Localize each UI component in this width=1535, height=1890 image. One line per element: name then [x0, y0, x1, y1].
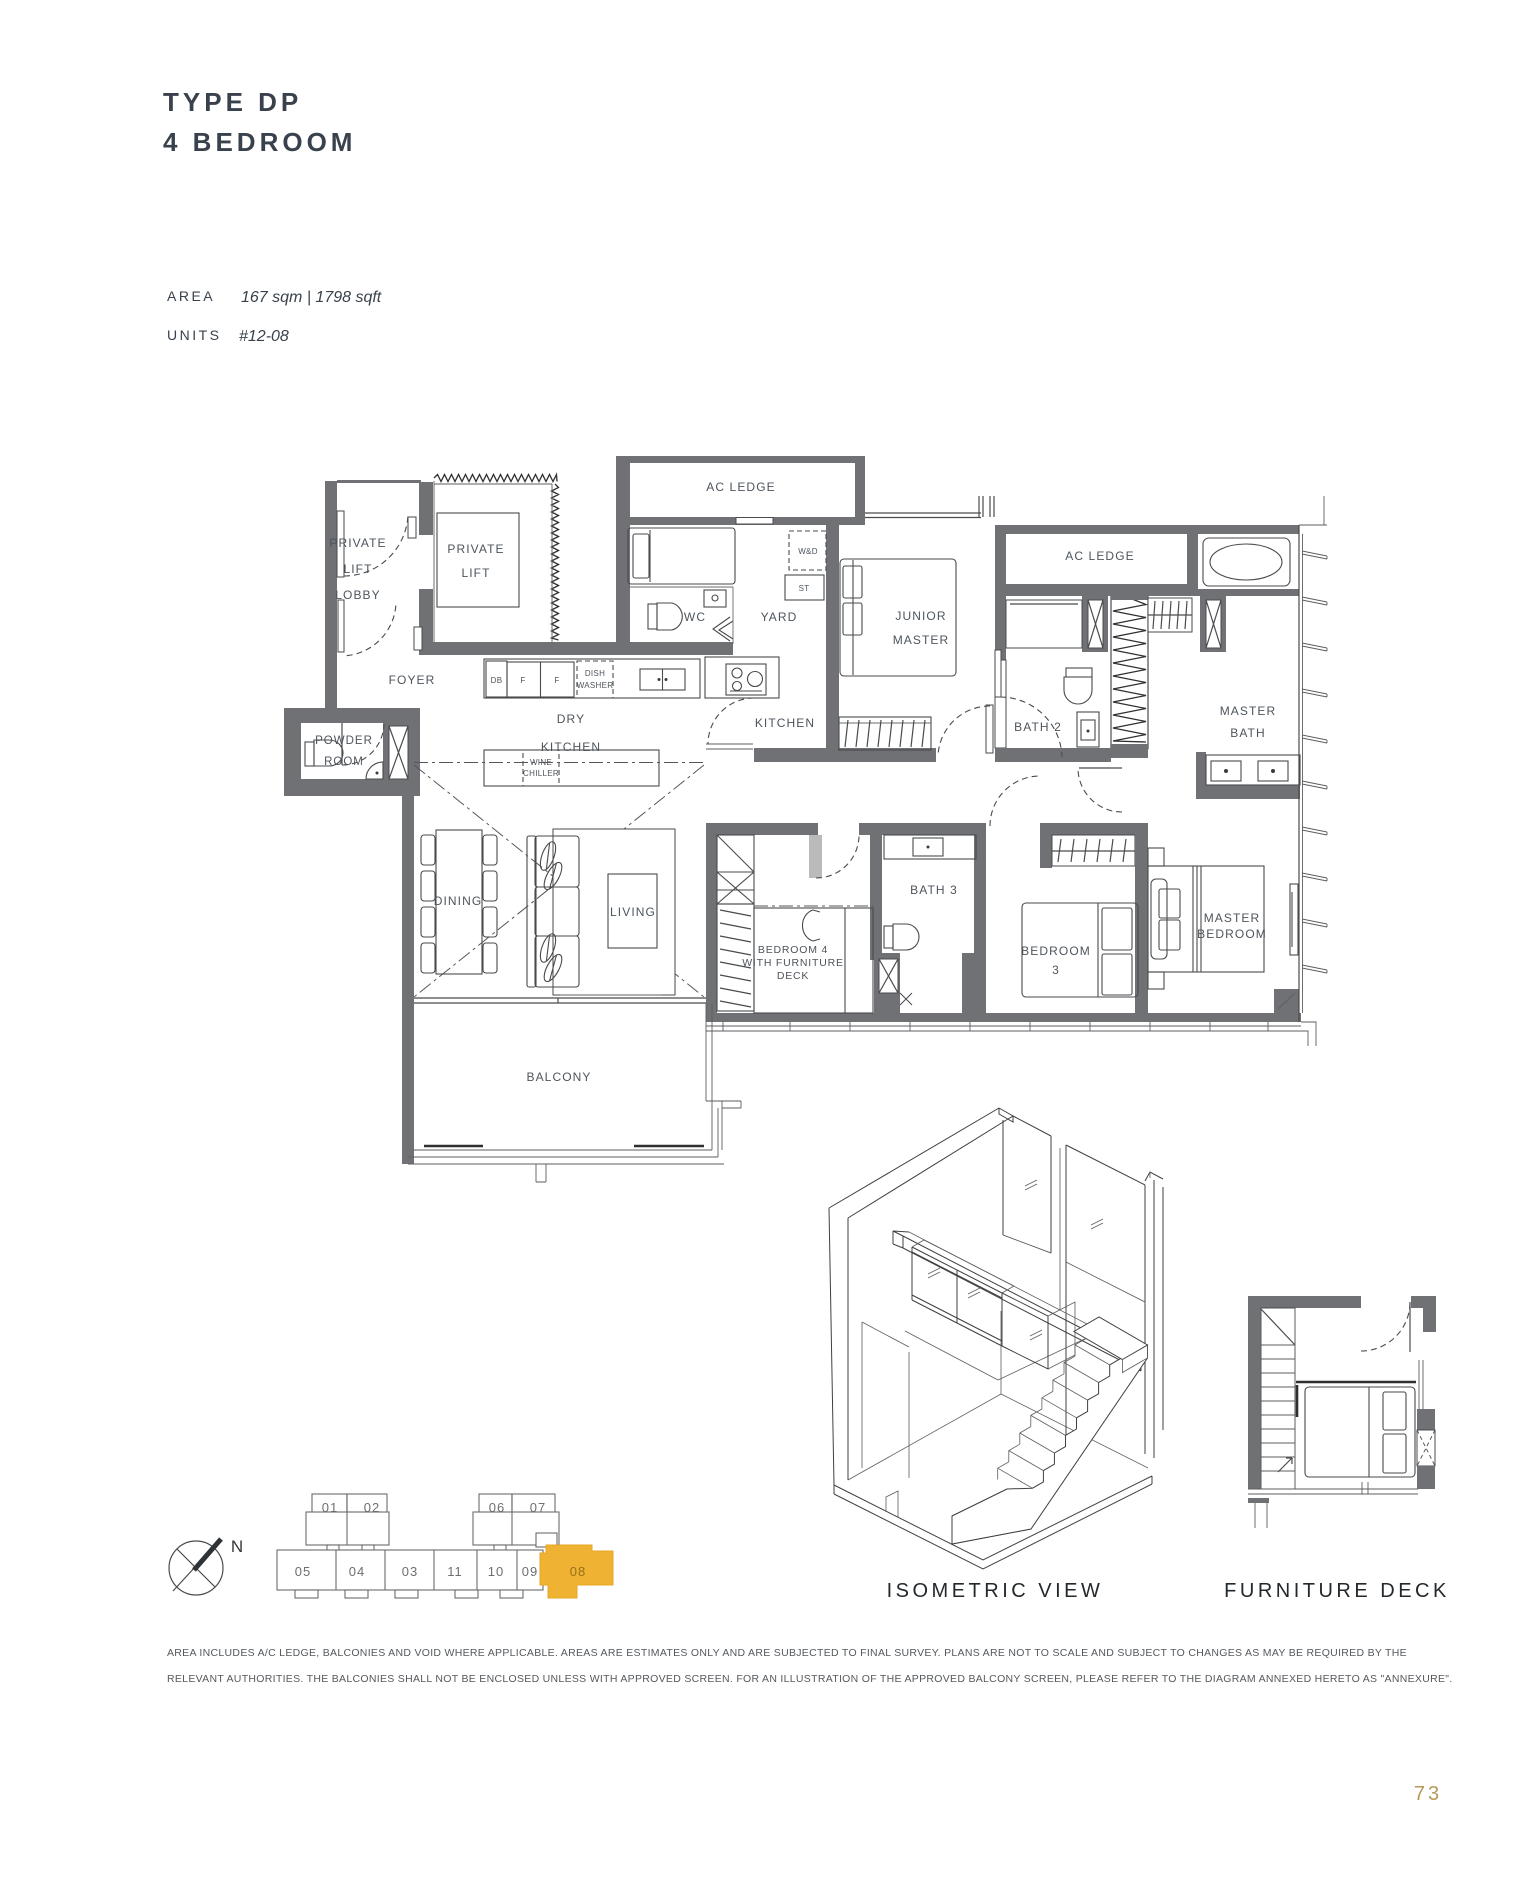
svg-text:ST: ST	[799, 584, 810, 593]
svg-text:BEDROOM: BEDROOM	[1021, 944, 1091, 958]
svg-text:BEDROOM 4: BEDROOM 4	[758, 944, 828, 956]
svg-text:KITCHEN: KITCHEN	[541, 740, 601, 754]
svg-text:KITCHEN: KITCHEN	[755, 716, 815, 730]
svg-text:02: 02	[364, 1500, 380, 1515]
svg-text:BATH 3: BATH 3	[910, 883, 958, 897]
svg-text:PRIVATE: PRIVATE	[329, 536, 386, 550]
svg-text:11: 11	[447, 1564, 463, 1579]
svg-text:LOBBY: LOBBY	[335, 588, 381, 602]
svg-text:N: N	[231, 1537, 243, 1556]
svg-text:4 BEDROOM: 4 BEDROOM	[163, 127, 356, 157]
svg-text:DRY: DRY	[557, 712, 585, 726]
svg-text:POWDER: POWDER	[315, 735, 373, 747]
svg-text:08: 08	[570, 1564, 586, 1579]
svg-text:06: 06	[489, 1500, 505, 1515]
svg-text:07: 07	[530, 1500, 546, 1515]
svg-text:FURNITURE DECK: FURNITURE DECK	[1224, 1580, 1450, 1602]
svg-text:04: 04	[349, 1564, 365, 1579]
svg-text:BALCONY: BALCONY	[526, 1070, 591, 1084]
svg-text:YARD: YARD	[761, 610, 798, 624]
svg-text:ROOM: ROOM	[324, 756, 364, 768]
svg-text:03: 03	[402, 1564, 418, 1579]
svg-text:F: F	[554, 676, 559, 685]
svg-text:#12-08: #12-08	[239, 328, 289, 345]
svg-text:CHILLER: CHILLER	[523, 769, 559, 778]
svg-text:RELEVANT AUTHORITIES. THE BALC: RELEVANT AUTHORITIES. THE BALCONIES SHAL…	[167, 1673, 1453, 1685]
svg-text:PRIVATE: PRIVATE	[447, 542, 504, 556]
svg-text:AREA: AREA	[167, 288, 215, 304]
svg-text:MASTER: MASTER	[1220, 704, 1277, 718]
svg-text:FOYER: FOYER	[389, 673, 436, 687]
svg-text:167 sqm | 1798 sqft: 167 sqm | 1798 sqft	[241, 289, 382, 306]
svg-text:UNITS: UNITS	[167, 327, 222, 343]
svg-text:MASTER: MASTER	[893, 633, 950, 647]
svg-text:3: 3	[1052, 963, 1060, 977]
svg-text:WITH FURNITURE: WITH FURNITURE	[742, 957, 844, 969]
svg-text:MASTER: MASTER	[1204, 911, 1261, 925]
svg-text:AC LEDGE: AC LEDGE	[706, 480, 776, 494]
svg-text:73: 73	[1414, 1783, 1442, 1805]
svg-text:WC: WC	[684, 610, 706, 624]
svg-text:AREA INCLUDES A/C LEDGE, BALCO: AREA INCLUDES A/C LEDGE, BALCONIES AND V…	[167, 1647, 1407, 1659]
svg-text:09: 09	[522, 1564, 538, 1579]
svg-text:F: F	[520, 676, 525, 685]
svg-text:LIFT: LIFT	[343, 562, 372, 576]
svg-text:BATH 2: BATH 2	[1014, 720, 1062, 734]
svg-text:DISH: DISH	[585, 669, 605, 678]
svg-text:05: 05	[295, 1564, 311, 1579]
svg-text:01: 01	[322, 1500, 338, 1515]
svg-text:JUNIOR: JUNIOR	[895, 609, 946, 623]
svg-text:BATH: BATH	[1230, 726, 1266, 740]
svg-text:AC LEDGE: AC LEDGE	[1065, 549, 1135, 563]
svg-text:DECK: DECK	[777, 970, 809, 982]
svg-text:LIFT: LIFT	[461, 566, 490, 580]
svg-text:TYPE DP: TYPE DP	[163, 87, 302, 117]
svg-text:DINING: DINING	[434, 894, 483, 908]
svg-text:LIVING: LIVING	[610, 905, 656, 919]
svg-text:DB: DB	[491, 676, 503, 685]
svg-text:BEDROOM: BEDROOM	[1197, 927, 1267, 941]
svg-text:ISOMETRIC VIEW: ISOMETRIC VIEW	[887, 1580, 1104, 1602]
svg-text:WASHER: WASHER	[577, 681, 614, 690]
svg-text:W&D: W&D	[798, 547, 818, 556]
svg-text:10: 10	[488, 1564, 504, 1579]
